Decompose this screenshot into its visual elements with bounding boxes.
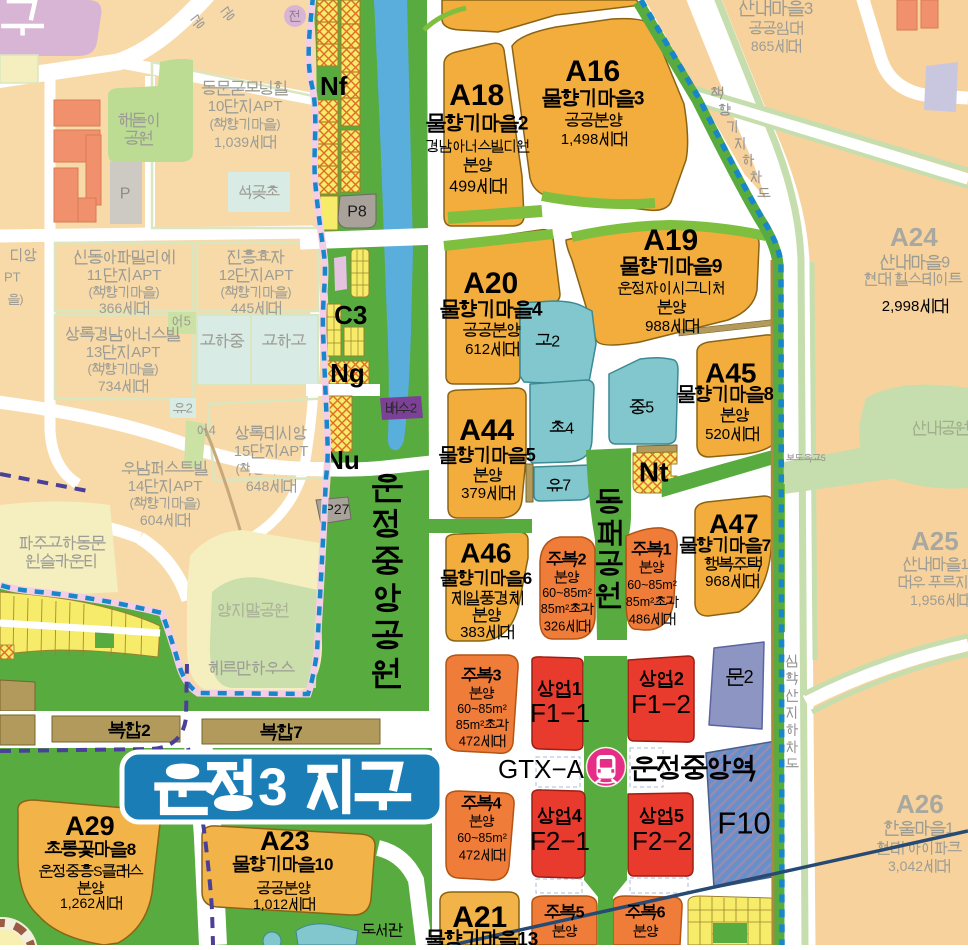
svg-text:(: ( bbox=[236, 461, 241, 476]
svg-text:8: 8 bbox=[127, 840, 136, 859]
svg-text:): ) bbox=[196, 495, 200, 510]
svg-text:A29: A29 bbox=[65, 811, 115, 841]
svg-text:PT: PT bbox=[4, 269, 21, 284]
svg-text:383: 383 bbox=[460, 624, 485, 641]
svg-text:6: 6 bbox=[523, 569, 532, 588]
svg-text:APT: APT bbox=[264, 267, 293, 284]
svg-text:12: 12 bbox=[219, 267, 236, 284]
svg-text:85m²: 85m² bbox=[626, 595, 654, 609]
svg-text:6: 6 bbox=[657, 904, 666, 921]
svg-text:(: ( bbox=[221, 284, 226, 299]
svg-text:A21: A21 bbox=[452, 901, 507, 934]
svg-text:3: 3 bbox=[258, 758, 302, 817]
svg-text:3,042: 3,042 bbox=[888, 858, 923, 874]
svg-text:GTX−A: GTX−A bbox=[498, 754, 585, 784]
svg-text:A25: A25 bbox=[911, 526, 959, 556]
svg-text:5: 5 bbox=[184, 313, 191, 328]
svg-text:520: 520 bbox=[705, 426, 730, 443]
svg-text:472: 472 bbox=[459, 847, 481, 862]
svg-text:10: 10 bbox=[208, 98, 225, 115]
svg-text:5: 5 bbox=[576, 904, 585, 921]
svg-text:4: 4 bbox=[565, 420, 574, 437]
svg-text:): ) bbox=[276, 116, 280, 131]
svg-text:4: 4 bbox=[572, 806, 582, 826]
svg-text:F2−2: F2−2 bbox=[632, 826, 692, 856]
svg-text:445: 445 bbox=[231, 300, 255, 316]
svg-text:): ) bbox=[155, 284, 159, 299]
svg-text:5: 5 bbox=[821, 453, 826, 463]
svg-text:604: 604 bbox=[140, 512, 164, 528]
svg-text:A16: A16 bbox=[565, 55, 620, 88]
svg-text:F1−1: F1−1 bbox=[530, 698, 590, 728]
svg-text:A46: A46 bbox=[460, 538, 511, 569]
svg-text:7: 7 bbox=[293, 723, 302, 742]
svg-text:1: 1 bbox=[663, 541, 672, 558]
svg-text:C3: C3 bbox=[334, 300, 367, 330]
svg-text:968: 968 bbox=[705, 573, 730, 590]
svg-text:1,498: 1,498 bbox=[561, 131, 599, 148]
svg-text:F10: F10 bbox=[717, 806, 770, 841]
svg-text:3: 3 bbox=[493, 667, 502, 684]
svg-text:P: P bbox=[120, 185, 131, 202]
svg-text:10: 10 bbox=[961, 556, 968, 573]
svg-text:11: 11 bbox=[87, 267, 103, 284]
svg-text:2: 2 bbox=[674, 669, 684, 689]
svg-text:1,039: 1,039 bbox=[214, 134, 249, 150]
svg-text:60~85m²: 60~85m² bbox=[627, 578, 677, 592]
svg-text:F1−2: F1−2 bbox=[631, 689, 691, 719]
svg-text:14: 14 bbox=[128, 478, 145, 495]
svg-text:1: 1 bbox=[572, 679, 582, 699]
svg-text:5: 5 bbox=[645, 399, 654, 416]
svg-text:3: 3 bbox=[804, 0, 813, 18]
svg-text:5: 5 bbox=[526, 445, 536, 465]
svg-text:A18: A18 bbox=[449, 79, 504, 112]
svg-text:2,998: 2,998 bbox=[882, 298, 920, 315]
svg-text:60~85m²: 60~85m² bbox=[457, 831, 507, 845]
svg-text:A44: A44 bbox=[459, 414, 514, 447]
svg-text:2: 2 bbox=[551, 333, 560, 350]
svg-text:APT: APT bbox=[253, 98, 282, 115]
svg-text:326: 326 bbox=[544, 618, 566, 633]
svg-text:APT: APT bbox=[132, 267, 161, 284]
svg-text:612: 612 bbox=[465, 341, 490, 358]
svg-text:60~85m²: 60~85m² bbox=[457, 702, 507, 716]
svg-text:988: 988 bbox=[645, 318, 670, 335]
svg-text:2: 2 bbox=[744, 667, 754, 687]
svg-text:Ng: Ng bbox=[330, 358, 365, 388]
svg-text:9: 9 bbox=[712, 257, 723, 278]
svg-text:2: 2 bbox=[410, 400, 417, 415]
svg-text:486: 486 bbox=[629, 611, 651, 626]
svg-text:APT: APT bbox=[131, 344, 160, 361]
svg-text:1,262: 1,262 bbox=[60, 895, 95, 911]
svg-text:8: 8 bbox=[764, 384, 774, 404]
svg-text:Nf: Nf bbox=[320, 71, 348, 101]
svg-text:(: ( bbox=[210, 116, 215, 131]
svg-text:15: 15 bbox=[234, 443, 251, 460]
svg-text:4: 4 bbox=[532, 300, 543, 321]
svg-text:3: 3 bbox=[634, 89, 645, 110]
svg-text:499: 499 bbox=[449, 178, 476, 195]
svg-text:7: 7 bbox=[562, 477, 571, 494]
svg-text:A24: A24 bbox=[890, 222, 938, 252]
svg-text:A45: A45 bbox=[705, 358, 756, 389]
svg-text:60~85m²: 60~85m² bbox=[542, 586, 592, 600]
svg-text:5: 5 bbox=[674, 806, 684, 826]
svg-text:APT: APT bbox=[173, 478, 202, 495]
svg-text:734: 734 bbox=[98, 378, 122, 394]
svg-text:A23: A23 bbox=[260, 826, 310, 856]
svg-text:P8: P8 bbox=[347, 203, 367, 220]
svg-text:): ) bbox=[287, 284, 291, 299]
svg-text:366: 366 bbox=[99, 300, 123, 316]
svg-text:10: 10 bbox=[315, 855, 334, 874]
svg-text:A26: A26 bbox=[896, 789, 944, 819]
svg-text:648: 648 bbox=[246, 478, 270, 494]
svg-text:S: S bbox=[93, 863, 102, 879]
svg-text:1,956: 1,956 bbox=[910, 592, 945, 608]
svg-text:2: 2 bbox=[578, 551, 587, 568]
svg-text:85m²: 85m² bbox=[456, 718, 484, 732]
svg-text:2: 2 bbox=[141, 721, 150, 740]
svg-text:13: 13 bbox=[517, 930, 538, 946]
svg-text:7: 7 bbox=[762, 536, 771, 555]
svg-text:472: 472 bbox=[459, 733, 481, 748]
svg-text:13: 13 bbox=[86, 344, 103, 361]
svg-text:9: 9 bbox=[941, 254, 950, 271]
svg-text:APT: APT bbox=[279, 443, 308, 460]
svg-text:4: 4 bbox=[209, 422, 216, 437]
svg-text:(: ( bbox=[89, 284, 94, 299]
svg-text:): ) bbox=[20, 292, 24, 306]
svg-text:): ) bbox=[154, 361, 158, 376]
svg-text:A47: A47 bbox=[709, 509, 759, 539]
svg-text:2: 2 bbox=[186, 400, 193, 415]
svg-text:865: 865 bbox=[751, 38, 775, 54]
svg-text:1,012: 1,012 bbox=[253, 896, 288, 912]
svg-text:379: 379 bbox=[461, 485, 486, 502]
svg-text:85m²: 85m² bbox=[541, 602, 569, 616]
svg-text:(: ( bbox=[88, 361, 93, 376]
svg-text:Nt: Nt bbox=[639, 457, 669, 488]
svg-text:4: 4 bbox=[493, 795, 502, 812]
svg-text:A19: A19 bbox=[643, 224, 698, 257]
svg-text:2: 2 bbox=[518, 114, 529, 135]
svg-text:(: ( bbox=[130, 495, 135, 510]
svg-text:F2−1: F2−1 bbox=[530, 826, 590, 856]
svg-text:A20: A20 bbox=[463, 267, 518, 300]
